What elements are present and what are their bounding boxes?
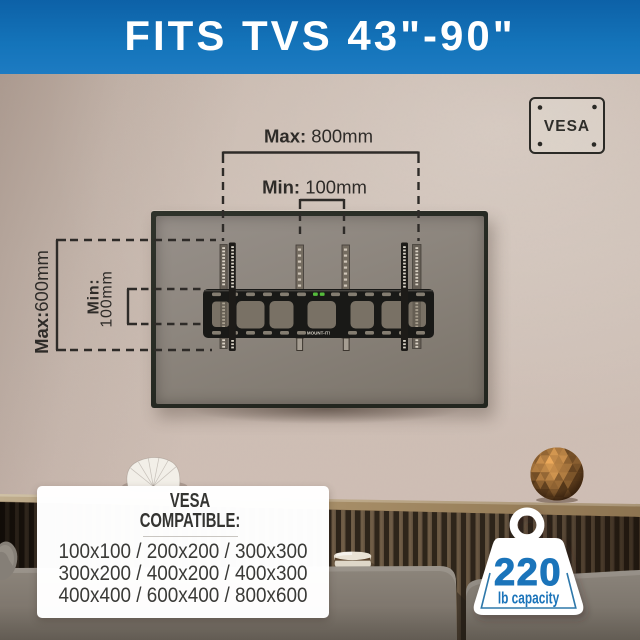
svg-text:Min: 100mm: Min: 100mm — [262, 177, 367, 198]
svg-text:Max:600mm: Max:600mm — [31, 250, 52, 354]
svg-text:Max: 800mm: Max: 800mm — [264, 126, 373, 147]
svg-text:MOUNT-IT!: MOUNT-IT! — [307, 330, 331, 335]
svg-text:220: 220 — [494, 552, 562, 594]
svg-text:lb capacity: lb capacity — [498, 590, 559, 608]
svg-text:100mm: 100mm — [98, 270, 115, 327]
